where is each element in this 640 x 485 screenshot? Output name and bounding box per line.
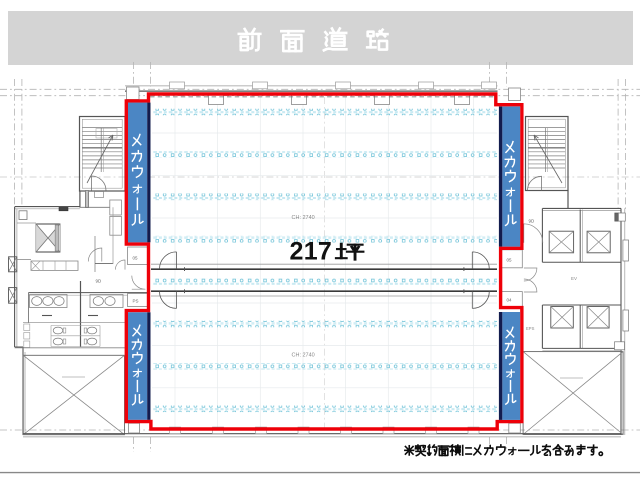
svg-text:05: 05: [507, 258, 513, 263]
svg-text:EV: EV: [571, 276, 577, 281]
svg-text:CH: 2740: CH: 2740: [292, 353, 315, 359]
svg-text:9D: 9D: [96, 279, 103, 284]
svg-text:217: 217: [290, 238, 333, 266]
svg-text:9D: 9D: [529, 219, 536, 224]
svg-text:EPS: EPS: [526, 326, 535, 331]
svg-text:PS: PS: [133, 299, 139, 304]
svg-text:CH: 2740: CH: 2740: [292, 215, 315, 221]
svg-text:04: 04: [507, 298, 513, 303]
svg-text:05: 05: [133, 256, 139, 261]
